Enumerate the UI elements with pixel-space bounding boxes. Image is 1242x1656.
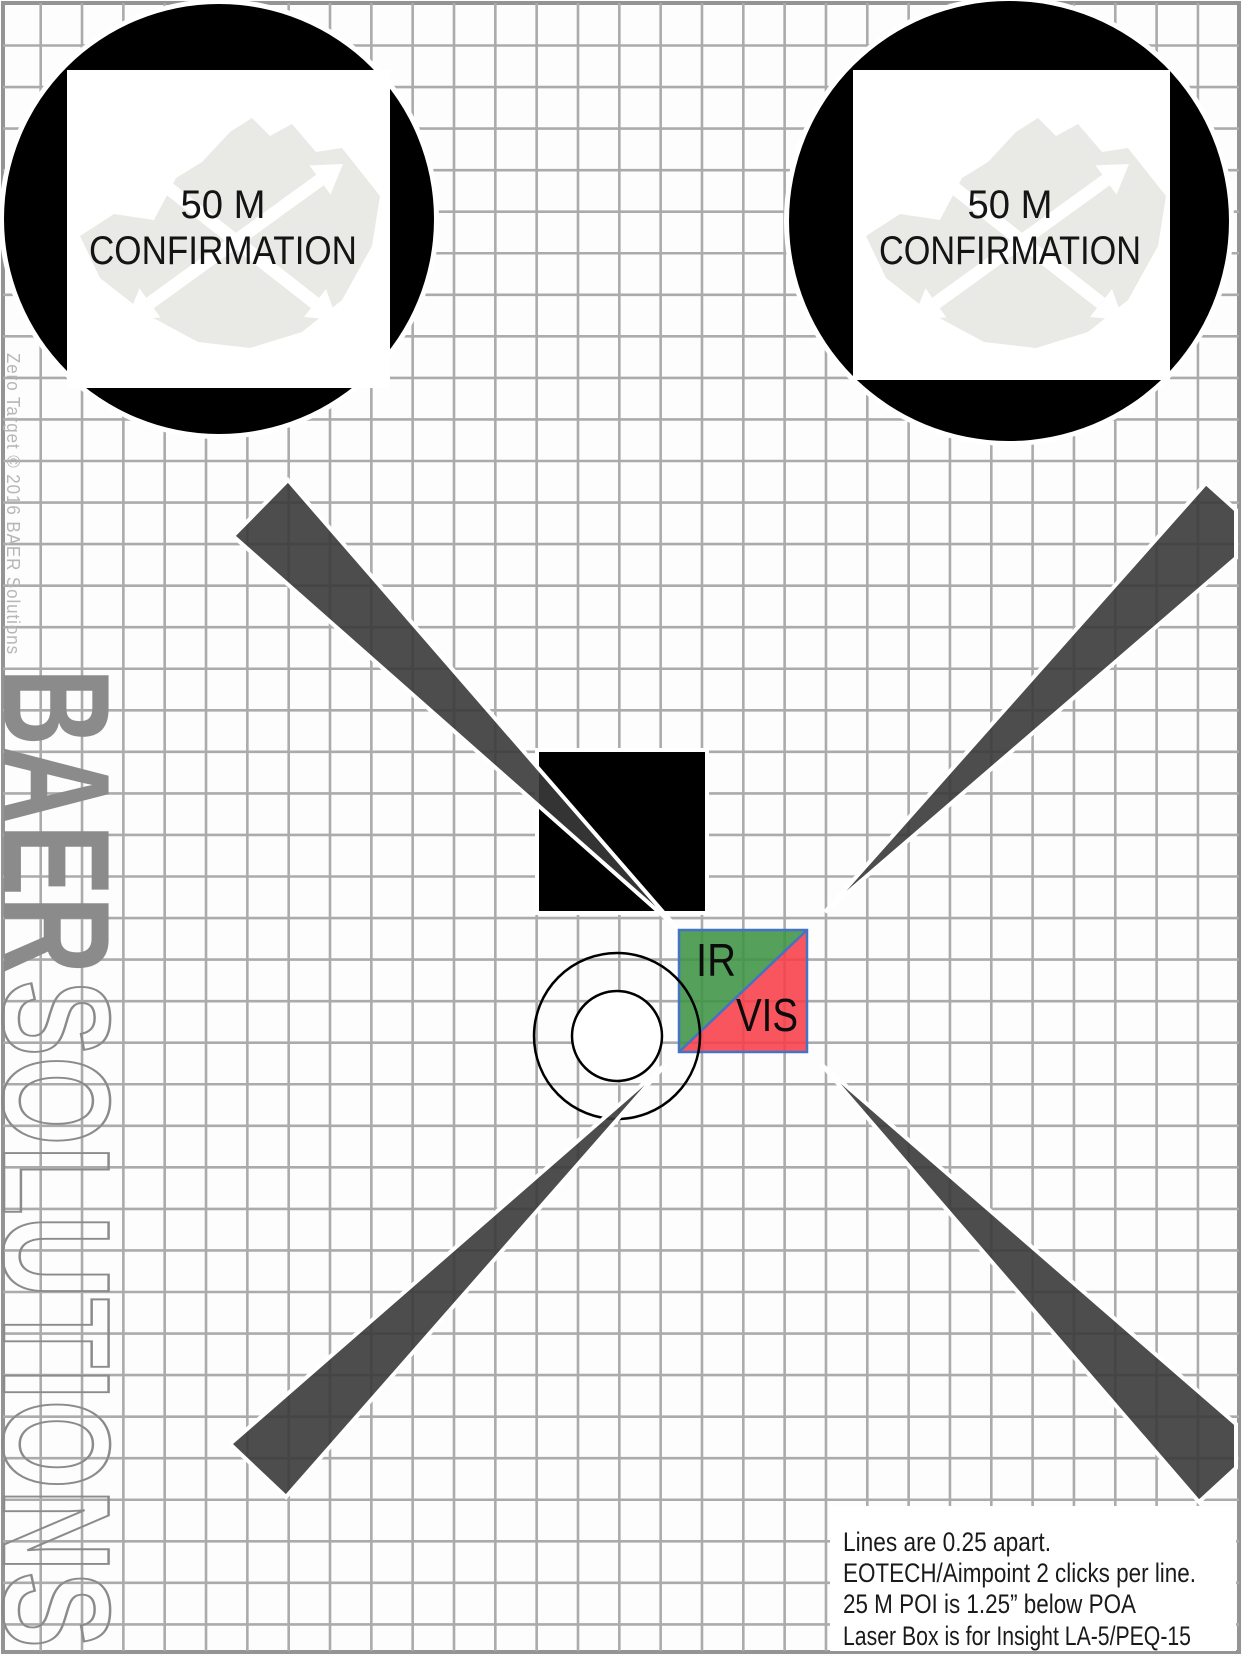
instruction-line-4: Laser Box is for Insight LA-5/PEQ-15 — [843, 1621, 1191, 1651]
instruction-line-1: Lines are 0.25 apart. — [843, 1527, 1051, 1557]
confirmation-target-right: 50 M CONFIRMATION — [784, 0, 1234, 446]
laser-zero-box: IR VIS — [679, 930, 807, 1052]
black-aiming-square — [537, 750, 707, 913]
pointer-wedge-bottom-left — [230, 1064, 666, 1497]
instruction-line-3: 25 M POI is 1.25” below POA — [843, 1589, 1136, 1619]
confirmation-line2: CONFIRMATION — [89, 229, 357, 273]
branding-sidebar: Zero Target © 2016 BAER Solutions BAER S… — [0, 353, 141, 1648]
pointer-wedge-bottom-right — [821, 1064, 1236, 1502]
target-graphics: 50 M CONFIRMATION 50 M CONFIRMATION IR V… — [0, 0, 1242, 1656]
confirmation-line1: 50 M — [181, 183, 266, 227]
brand-name-outline: SOLUTIONS — [0, 980, 141, 1648]
brand-name-solid: BAER — [0, 668, 141, 974]
vis-label: VIS — [736, 989, 798, 1041]
confirmation-line1: 50 M — [968, 183, 1053, 227]
copyright-text: Zero Target © 2016 BAER Solutions — [3, 353, 23, 655]
instruction-line-2: EOTECH/Aimpoint 2 clicks per line. — [843, 1558, 1196, 1588]
poa-ring — [534, 953, 700, 1119]
instructions-box: Lines are 0.25 apart. EOTECH/Aimpoint 2 … — [830, 1506, 1236, 1651]
poa-ring-inner — [572, 991, 662, 1081]
confirmation-line2: CONFIRMATION — [879, 229, 1141, 273]
zero-target-sheet: 50 M CONFIRMATION 50 M CONFIRMATION IR V… — [0, 0, 1242, 1656]
ir-label: IR — [696, 934, 736, 986]
confirmation-target-left: 50 M CONFIRMATION — [0, 0, 439, 439]
pointer-wedge-top-right — [825, 483, 1236, 912]
